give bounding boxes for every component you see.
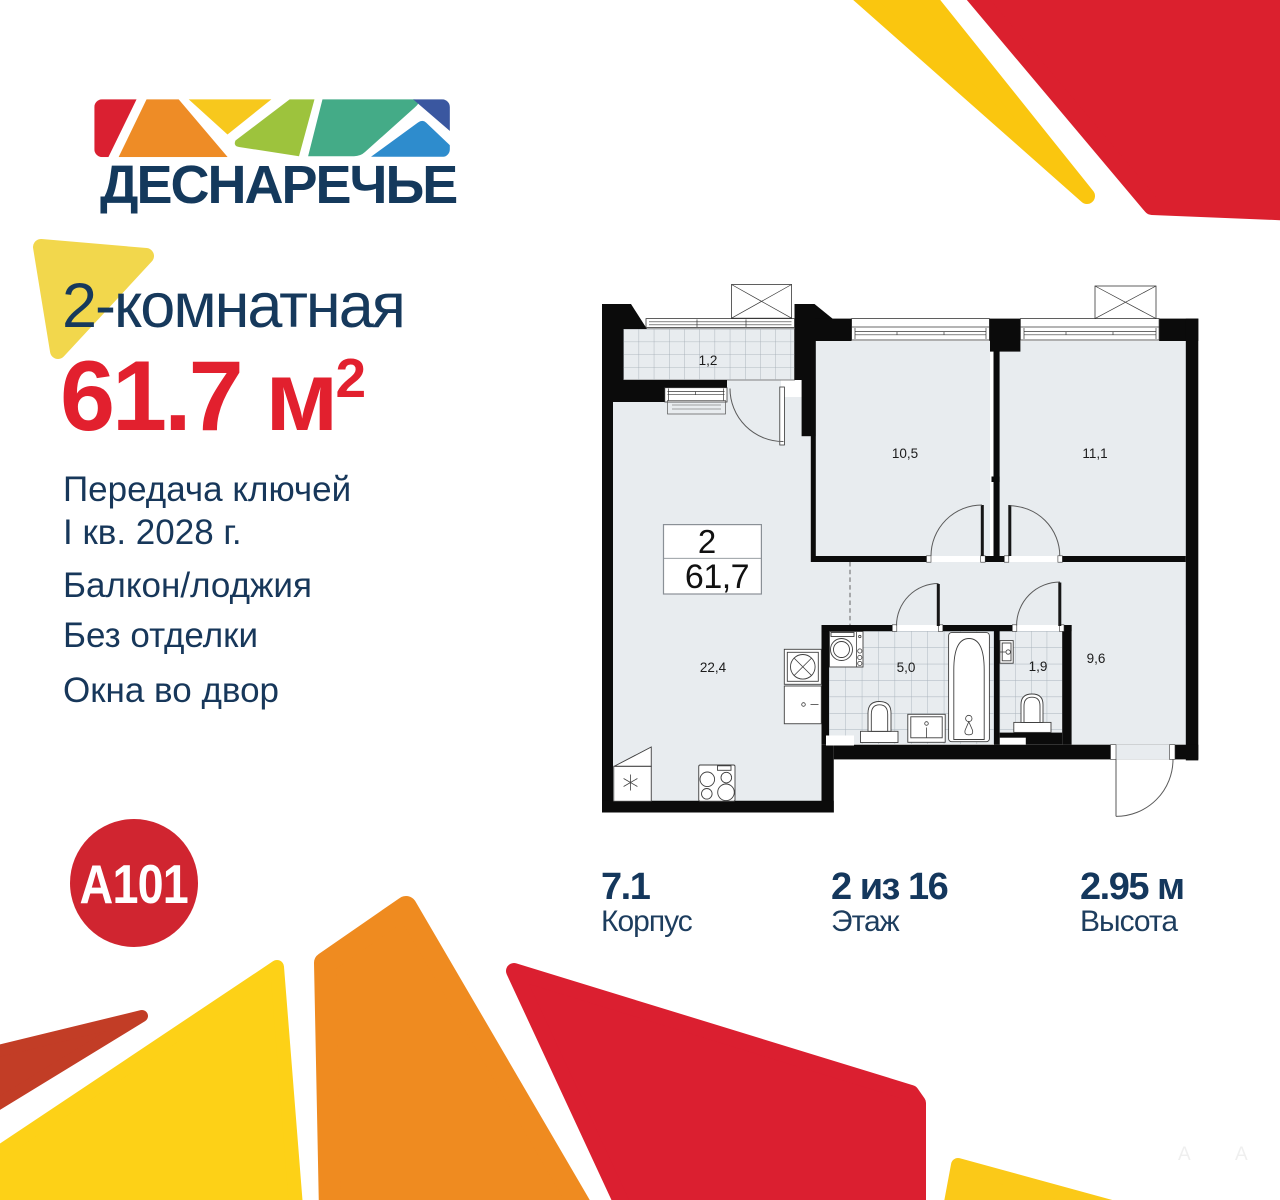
svg-text:61,7: 61,7	[685, 558, 749, 596]
svg-text:9,6: 9,6	[1087, 651, 1106, 666]
svg-text:1,2: 1,2	[699, 353, 718, 368]
svg-text:1,9: 1,9	[1029, 659, 1048, 674]
svg-text:11,1: 11,1	[1082, 446, 1107, 461]
svg-text:22,4: 22,4	[700, 660, 727, 675]
svg-text:5,0: 5,0	[897, 660, 916, 675]
svg-text:2: 2	[698, 523, 716, 560]
svg-text:10,5: 10,5	[892, 446, 918, 461]
